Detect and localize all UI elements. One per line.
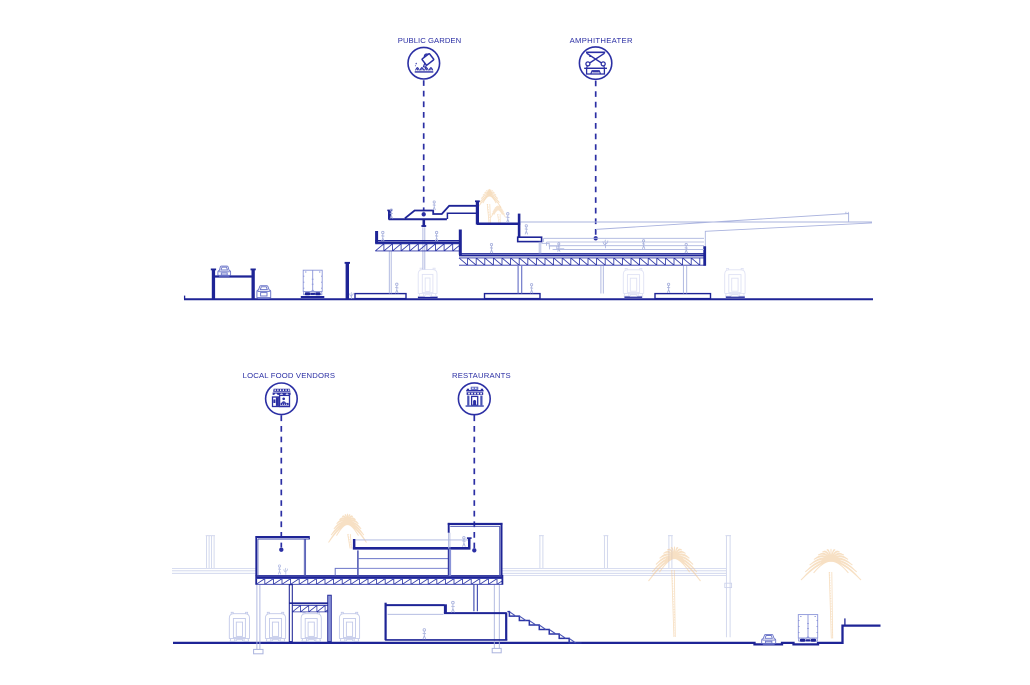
svg-text:LOCAL FOOD VENDORS: LOCAL FOOD VENDORS [243, 371, 335, 380]
svg-text:RESTAURANTS: RESTAURANTS [452, 371, 511, 380]
svg-text:PUBLIC GARDEN: PUBLIC GARDEN [398, 36, 461, 45]
svg-text:AMPHITHEATER: AMPHITHEATER [570, 36, 633, 45]
